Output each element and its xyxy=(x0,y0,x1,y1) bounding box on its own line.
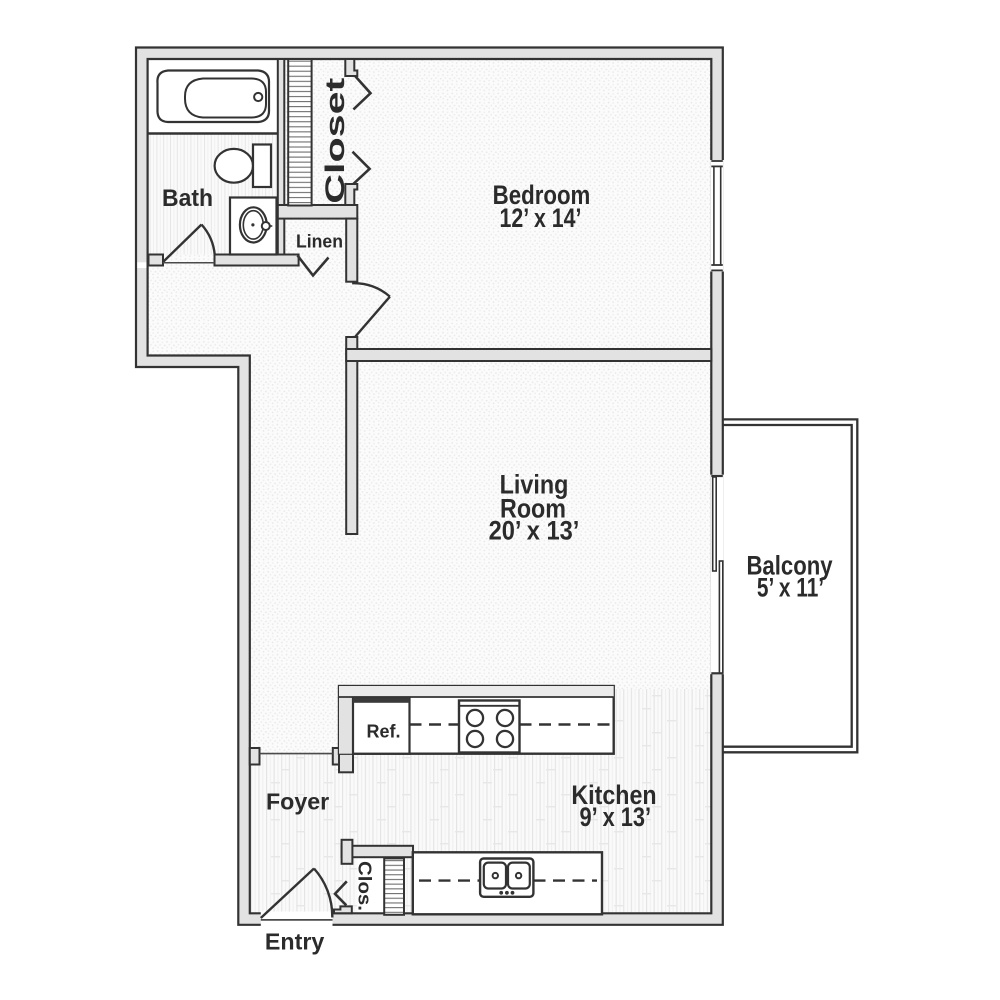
svg-text:Clos.: Clos. xyxy=(355,861,375,911)
svg-text:Foyer: Foyer xyxy=(266,789,329,815)
svg-text:9’ x 13’: 9’ x 13’ xyxy=(580,802,652,832)
svg-text:12’ x 14’: 12’ x 14’ xyxy=(500,203,582,233)
svg-text:Linen: Linen xyxy=(296,232,343,252)
svg-text:5’ x 11’: 5’ x 11’ xyxy=(757,573,824,603)
svg-text:Entry: Entry xyxy=(265,929,325,955)
svg-text:Closet: Closet xyxy=(320,78,350,204)
svg-text:20’ x 13’: 20’ x 13’ xyxy=(489,516,580,546)
svg-text:Ref.: Ref. xyxy=(367,722,401,742)
svg-text:Bath: Bath xyxy=(162,185,213,212)
